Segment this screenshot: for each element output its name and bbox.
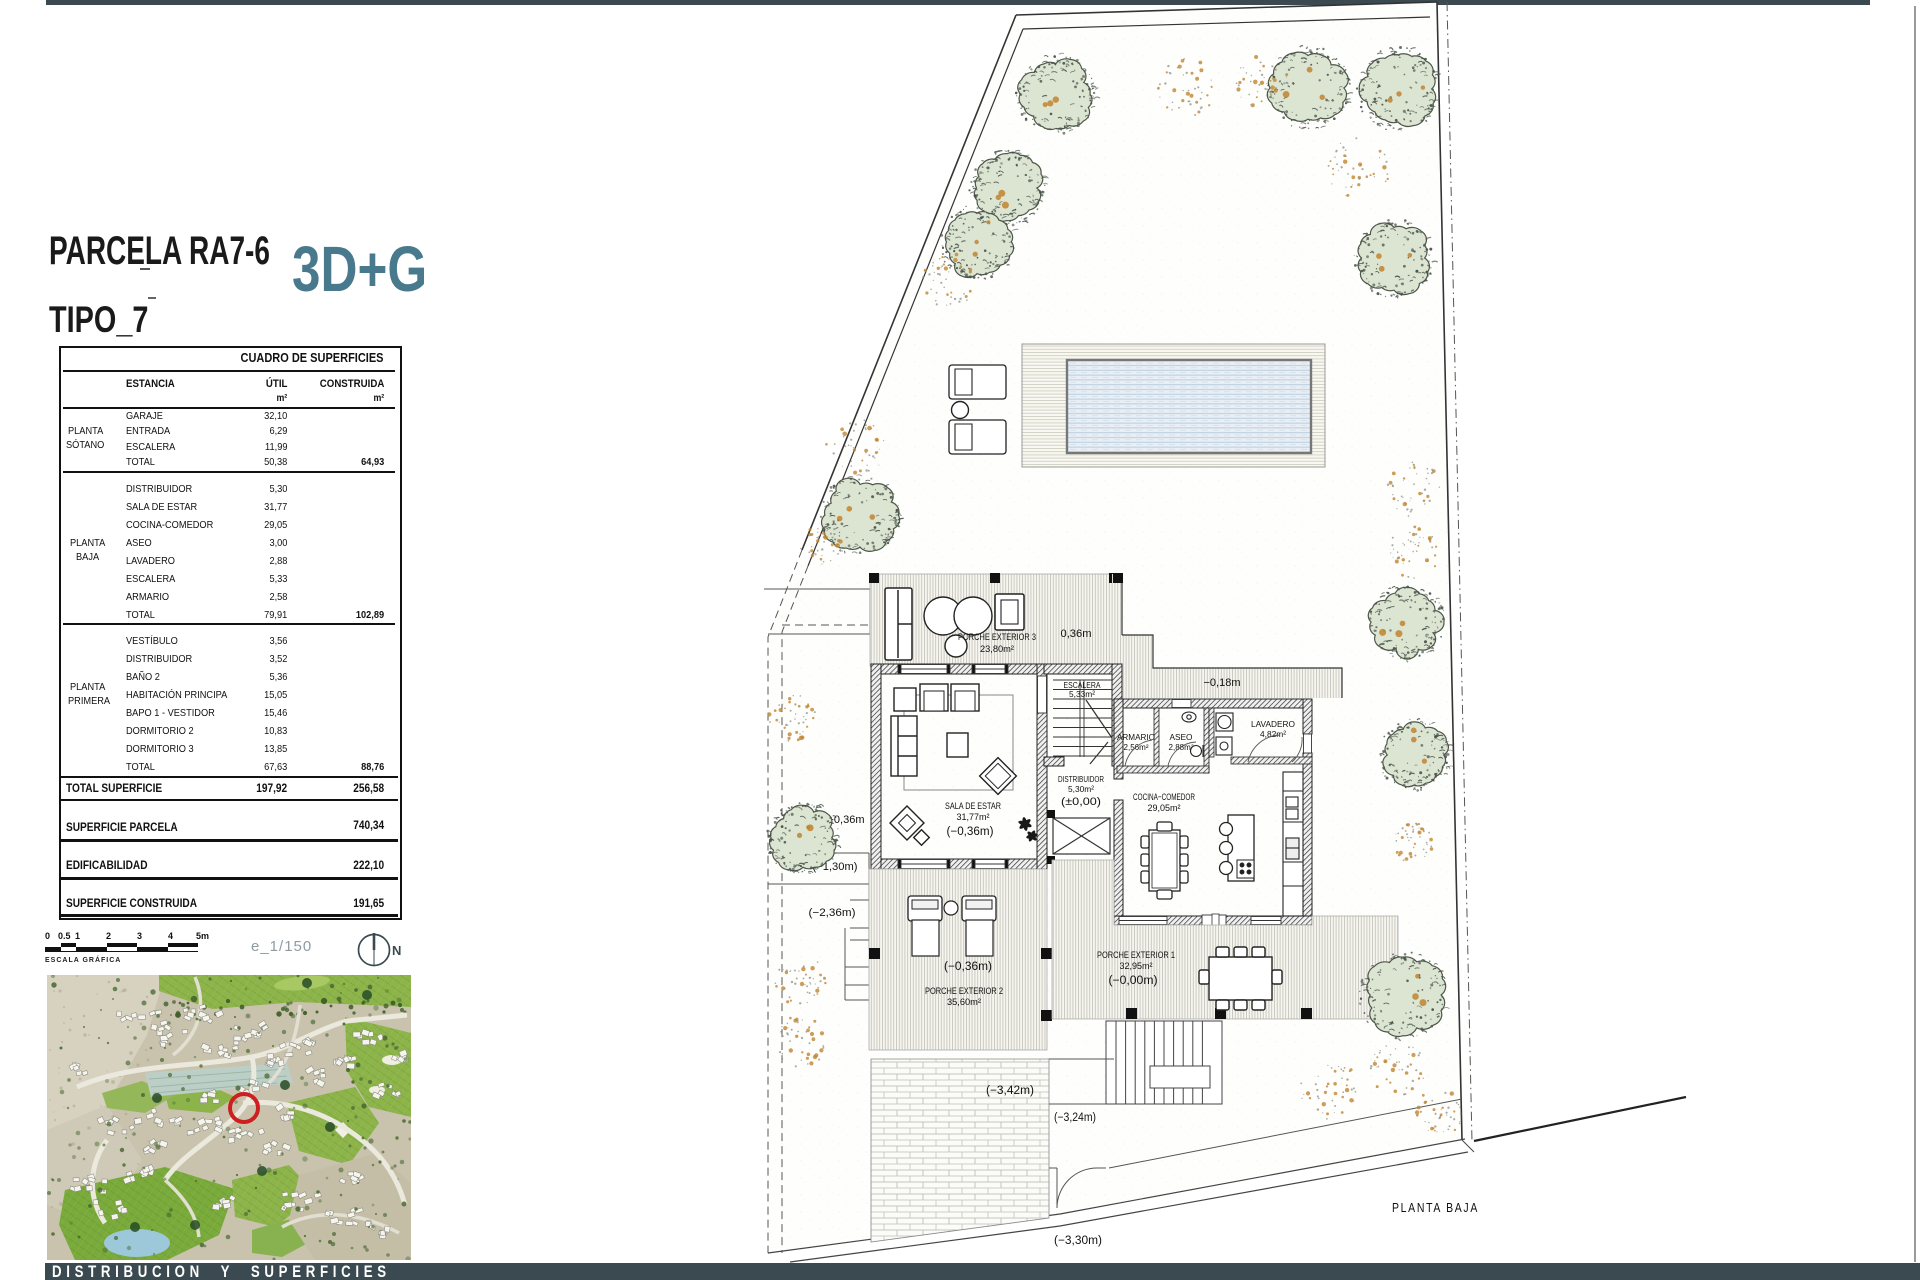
svg-text:23,80m²: 23,80m²	[980, 644, 1014, 655]
svg-text:DISTRIBUIDOR: DISTRIBUIDOR	[1058, 774, 1104, 784]
svg-text:5,33m²: 5,33m²	[1069, 689, 1095, 699]
svg-text:PLANTA BAJA: PLANTA BAJA	[1392, 1201, 1479, 1215]
svg-text:31,77m²: 31,77m²	[957, 812, 990, 823]
svg-text:(−3,24m): (−3,24m)	[1054, 1112, 1096, 1124]
svg-text:(−3,42m): (−3,42m)	[986, 1085, 1034, 1097]
svg-text:35,60m²: 35,60m²	[947, 997, 981, 1008]
svg-text:(−0,36m): (−0,36m)	[944, 961, 992, 973]
svg-text:(−0,36m): (−0,36m)	[947, 826, 994, 838]
svg-text:0,36m: 0,36m	[1061, 628, 1092, 640]
svg-text:PORCHE EXTERIOR 1: PORCHE EXTERIOR 1	[1097, 950, 1175, 961]
svg-text:(−3,30m): (−3,30m)	[1054, 1235, 1102, 1247]
svg-text:32,95m²: 32,95m²	[1120, 961, 1153, 972]
svg-text:COCINA−COMEDOR: COCINA−COMEDOR	[1133, 792, 1195, 803]
svg-text:PORCHE EXTERIOR 3: PORCHE EXTERIOR 3	[958, 632, 1036, 643]
svg-text:(±0,00): (±0,00)	[1061, 796, 1101, 808]
svg-text:PORCHE EXTERIOR 2: PORCHE EXTERIOR 2	[925, 986, 1003, 997]
svg-text:LAVADERO: LAVADERO	[1251, 719, 1295, 729]
svg-text:5,30m²: 5,30m²	[1068, 784, 1094, 794]
svg-text:(−2,36m): (−2,36m)	[809, 907, 856, 919]
svg-text:−0,18m: −0,18m	[1204, 677, 1241, 689]
svg-text:(−0,00m): (−0,00m)	[1109, 975, 1158, 987]
svg-text:SALA DE ESTAR: SALA DE ESTAR	[945, 801, 1001, 812]
svg-text:29,05m²: 29,05m²	[1148, 803, 1181, 814]
svg-text:ASEO: ASEO	[1170, 733, 1193, 742]
svg-text:4,82m²: 4,82m²	[1260, 729, 1286, 739]
svg-text:N: N	[392, 943, 401, 958]
